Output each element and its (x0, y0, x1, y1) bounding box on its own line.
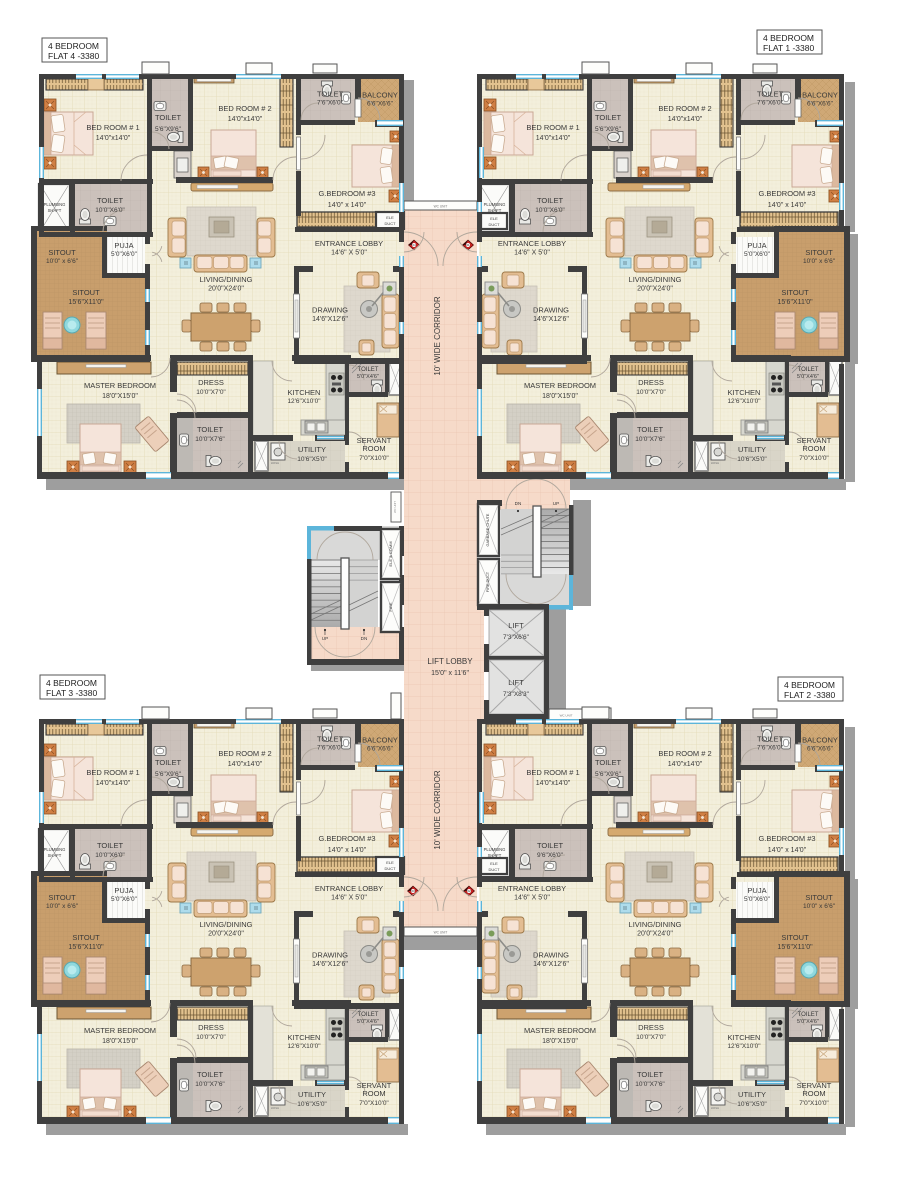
svg-text:14'0" x 14'0": 14'0" x 14'0" (768, 202, 807, 209)
svg-text:TOILET: TOILET (798, 1012, 819, 1018)
svg-text:G.BEDROOM #3: G.BEDROOM #3 (318, 189, 375, 198)
svg-text:BED ROOM # 2: BED ROOM # 2 (218, 104, 271, 113)
svg-text:SITOUT: SITOUT (805, 248, 833, 257)
svg-text:DUCT: DUCT (384, 221, 396, 226)
svg-text:14'0" x 14'0": 14'0" x 14'0" (328, 847, 367, 854)
svg-text:14'0"x14'0": 14'0"x14'0" (96, 780, 131, 787)
svg-text:14'0" x 14'0": 14'0" x 14'0" (768, 847, 807, 854)
svg-text:04: 04 (412, 243, 416, 247)
svg-text:LIVING/DINING: LIVING/DINING (200, 920, 253, 929)
svg-text:FLAT 3 -3380: FLAT 3 -3380 (46, 688, 97, 698)
svg-text:GARBAGE CHUTE: GARBAGE CHUTE (486, 513, 490, 546)
svg-text:DRESS: DRESS (198, 378, 224, 387)
svg-text:14'0"x14'0": 14'0"x14'0" (228, 116, 263, 123)
svg-text:10'0" x 6'6": 10'0" x 6'6" (803, 903, 836, 910)
svg-text:WASH: WASH (271, 461, 279, 465)
svg-text:10'6"X5'0": 10'6"X5'0" (737, 1101, 767, 1108)
svg-text:KITCHEN: KITCHEN (288, 1033, 321, 1042)
svg-text:03: 03 (411, 889, 415, 893)
svg-text:20'0"X24'0": 20'0"X24'0" (637, 931, 673, 938)
svg-text:14'0"x14'0": 14'0"x14'0" (536, 135, 571, 142)
svg-text:ROOM: ROOM (802, 1089, 825, 1098)
svg-text:TOILET: TOILET (197, 425, 224, 434)
svg-text:10'0"X7'0": 10'0"X7'0" (196, 1034, 226, 1041)
svg-text:14'6" X 5'0": 14'6" X 5'0" (331, 250, 367, 257)
svg-text:5'6"X9'6": 5'6"X9'6" (155, 771, 182, 778)
svg-text:MASTER BEDROOM: MASTER BEDROOM (524, 1026, 596, 1035)
svg-text:4 BEDROOM: 4 BEDROOM (784, 680, 835, 690)
svg-text:DUCT: DUCT (488, 867, 500, 872)
svg-text:14'6" X 5'0": 14'6" X 5'0" (514, 895, 550, 902)
svg-text:BED ROOM # 1: BED ROOM # 1 (526, 768, 579, 777)
svg-text:6'6"X6'6": 6'6"X6'6" (367, 746, 394, 753)
svg-text:FIRE DUCT: FIRE DUCT (486, 571, 490, 592)
svg-text:PUJA: PUJA (747, 886, 766, 895)
svg-text:10'0" x 6'6": 10'0" x 6'6" (46, 258, 79, 265)
svg-text:14'6"X12'6": 14'6"X12'6" (533, 316, 569, 323)
svg-text:BED ROOM # 2: BED ROOM # 2 (218, 749, 271, 758)
svg-text:TOILET: TOILET (97, 841, 124, 850)
svg-text:G.BEDROOM #3: G.BEDROOM #3 (758, 189, 815, 198)
svg-text:G.BEDROOM #3: G.BEDROOM #3 (318, 834, 375, 843)
svg-text:4 BEDROOM: 4 BEDROOM (48, 41, 99, 51)
svg-text:TOILET: TOILET (97, 196, 124, 205)
svg-text:LIFT: LIFT (508, 678, 524, 687)
svg-text:WC UNIT: WC UNIT (434, 931, 448, 935)
svg-text:DN: DN (515, 501, 522, 506)
svg-text:TOILET: TOILET (757, 90, 784, 99)
svg-text:ENTRANCE LOBBY: ENTRANCE LOBBY (315, 239, 383, 248)
svg-text:BALCONY: BALCONY (802, 91, 838, 100)
svg-text:15'6"X11'0": 15'6"X11'0" (68, 299, 104, 306)
svg-text:14'0"x14'0": 14'0"x14'0" (668, 116, 703, 123)
svg-text:7'3"X8'3": 7'3"X8'3" (503, 691, 530, 698)
svg-text:TOILET: TOILET (757, 735, 784, 744)
svg-text:LIVING/DINING: LIVING/DINING (629, 275, 682, 284)
svg-text:20'0"X24'0": 20'0"X24'0" (208, 931, 244, 938)
svg-text:UTILITY: UTILITY (298, 445, 326, 454)
svg-text:7'0"X10'0": 7'0"X10'0" (799, 455, 829, 462)
svg-text:FIRE: FIRE (388, 602, 393, 611)
svg-text:TOILET: TOILET (155, 113, 182, 122)
svg-text:5'0"X4'6": 5'0"X4'6" (357, 1019, 379, 1025)
svg-text:4 BEDROOM: 4 BEDROOM (763, 33, 814, 43)
svg-text:14'0"x14'0": 14'0"x14'0" (228, 761, 263, 768)
svg-text:12'6"X10'0": 12'6"X10'0" (727, 398, 761, 405)
svg-text:ELE: ELE (490, 216, 498, 221)
svg-text:WASH: WASH (271, 1106, 279, 1110)
svg-text:PUJA: PUJA (114, 886, 133, 895)
svg-text:TOILET: TOILET (537, 196, 564, 205)
svg-text:10'0"X6'0": 10'0"X6'0" (535, 207, 565, 214)
svg-text:10'6"X5'0": 10'6"X5'0" (297, 456, 327, 463)
svg-text:BALCONY: BALCONY (802, 736, 838, 745)
svg-text:ROOM: ROOM (362, 1089, 385, 1098)
svg-text:BED ROOM # 1: BED ROOM # 1 (86, 123, 139, 132)
svg-text:WC UNIT: WC UNIT (560, 714, 573, 718)
svg-text:10' WIDE CORRIDOR: 10' WIDE CORRIDOR (433, 296, 442, 376)
svg-text:5'0"X6'0": 5'0"X6'0" (111, 896, 138, 903)
svg-text:TOILET: TOILET (798, 367, 819, 373)
svg-text:LIFT LOBBY: LIFT LOBBY (427, 657, 473, 666)
svg-text:UTILITY: UTILITY (738, 1090, 766, 1099)
svg-text:TOILET: TOILET (595, 113, 622, 122)
svg-text:18'0"X15'0": 18'0"X15'0" (542, 393, 578, 400)
svg-text:DRAWING: DRAWING (312, 306, 348, 315)
svg-text:5'6"X9'6": 5'6"X9'6" (595, 126, 622, 133)
svg-text:TOILET: TOILET (637, 425, 664, 434)
svg-text:14'6" X 5'0": 14'6" X 5'0" (331, 895, 367, 902)
svg-text:DUCT: DUCT (488, 222, 500, 227)
svg-text:14'0"x14'0": 14'0"x14'0" (96, 135, 131, 142)
svg-text:10'0"X7'0": 10'0"X7'0" (196, 389, 226, 396)
svg-text:DRAWING: DRAWING (533, 306, 569, 315)
svg-text:SITOUT: SITOUT (805, 893, 833, 902)
svg-text:G.BEDROOM #3: G.BEDROOM #3 (758, 834, 815, 843)
svg-text:ROOM: ROOM (802, 444, 825, 453)
svg-text:5'0"X4'6": 5'0"X4'6" (797, 374, 819, 380)
svg-text:KITCHEN: KITCHEN (288, 388, 321, 397)
svg-text:BALCONY: BALCONY (362, 736, 398, 745)
svg-text:SITOUT: SITOUT (781, 933, 809, 942)
svg-text:KITCHEN: KITCHEN (728, 1033, 761, 1042)
svg-text:7'6"X6'0": 7'6"X6'0" (317, 100, 344, 107)
svg-text:KITCHEN: KITCHEN (728, 388, 761, 397)
svg-text:10'0"X7'6": 10'0"X7'6" (195, 1081, 225, 1088)
svg-text:4 BEDROOM: 4 BEDROOM (46, 678, 97, 688)
svg-text:18'0"X15'0": 18'0"X15'0" (542, 1038, 578, 1045)
svg-text:7'0"X10'0": 7'0"X10'0" (359, 455, 389, 462)
svg-text:7'3"X6'6": 7'3"X6'6" (503, 634, 530, 641)
svg-text:15'0" x 11'6": 15'0" x 11'6" (431, 670, 469, 677)
svg-text:WASH: WASH (711, 1106, 719, 1110)
svg-text:14'0"x14'0": 14'0"x14'0" (668, 761, 703, 768)
svg-text:TOILET: TOILET (537, 841, 564, 850)
svg-text:ELE: ELE (386, 215, 394, 220)
svg-text:20'0"X24'0": 20'0"X24'0" (208, 286, 244, 293)
svg-text:15'6"X11'0": 15'6"X11'0" (777, 944, 813, 951)
svg-text:ENTRANCE LOBBY: ENTRANCE LOBBY (498, 239, 566, 248)
svg-text:7'6"X6'0": 7'6"X6'0" (757, 745, 784, 752)
svg-text:20'0"X24'0": 20'0"X24'0" (637, 286, 673, 293)
svg-text:12'6"X10'0": 12'6"X10'0" (727, 1043, 761, 1050)
svg-text:14'6"X12'6": 14'6"X12'6" (312, 961, 348, 968)
svg-text:TOILET: TOILET (637, 1070, 664, 1079)
svg-text:UP: UP (322, 636, 328, 641)
svg-text:DRAWING: DRAWING (533, 951, 569, 960)
svg-text:10'0" x 6'6": 10'0" x 6'6" (803, 258, 836, 265)
svg-text:7'0"X10'0": 7'0"X10'0" (799, 1100, 829, 1107)
svg-text:SITOUT: SITOUT (48, 893, 76, 902)
svg-text:DRESS: DRESS (198, 1023, 224, 1032)
svg-text:7'6"X6'0": 7'6"X6'0" (757, 100, 784, 107)
svg-text:15'6"X11'0": 15'6"X11'0" (777, 299, 813, 306)
svg-text:TOILET: TOILET (155, 758, 182, 767)
svg-text:12'6"X10'0": 12'6"X10'0" (287, 398, 321, 405)
svg-text:9'6"X6'0": 9'6"X6'0" (537, 852, 564, 859)
svg-text:5'0"X4'6": 5'0"X4'6" (797, 1019, 819, 1025)
svg-text:10'0"X7'6": 10'0"X7'6" (635, 436, 665, 443)
svg-text:10'0"X7'6": 10'0"X7'6" (195, 436, 225, 443)
svg-text:TOILET: TOILET (317, 90, 344, 99)
svg-text:LIVING/DINING: LIVING/DINING (629, 920, 682, 929)
svg-text:10'6"X5'0": 10'6"X5'0" (737, 456, 767, 463)
svg-text:01: 01 (466, 243, 470, 247)
svg-text:TOILET: TOILET (358, 367, 379, 373)
svg-text:BED ROOM # 1: BED ROOM # 1 (526, 123, 579, 132)
svg-text:14'6" X 5'0": 14'6" X 5'0" (514, 250, 550, 257)
svg-text:PLUMBING: PLUMBING (484, 202, 506, 207)
svg-text:SHAFT: SHAFT (48, 208, 62, 213)
svg-text:14'6"X12'6": 14'6"X12'6" (533, 961, 569, 968)
svg-text:ELE & COMM: ELE & COMM (388, 541, 393, 566)
svg-text:PUJA: PUJA (114, 241, 133, 250)
svg-text:FLAT 4 -3380: FLAT 4 -3380 (48, 51, 99, 61)
svg-text:TOILET: TOILET (595, 758, 622, 767)
svg-text:DUCT: DUCT (384, 866, 396, 871)
svg-text:BED ROOM # 2: BED ROOM # 2 (658, 749, 711, 758)
svg-text:BED ROOM # 2: BED ROOM # 2 (658, 104, 711, 113)
svg-text:10'0"X6'0": 10'0"X6'0" (95, 852, 125, 859)
svg-text:ENTRANCE LOBBY: ENTRANCE LOBBY (315, 884, 383, 893)
svg-text:18'0"X15'0": 18'0"X15'0" (102, 393, 138, 400)
svg-text:DRESS: DRESS (638, 1023, 664, 1032)
svg-text:SHAFT: SHAFT (48, 853, 62, 858)
svg-text:ELE: ELE (490, 861, 498, 866)
svg-text:FLAT 2 -3380: FLAT 2 -3380 (784, 690, 835, 700)
svg-text:SITOUT: SITOUT (72, 933, 100, 942)
svg-text:MASTER BEDROOM: MASTER BEDROOM (524, 381, 596, 390)
svg-text:PLUMBING: PLUMBING (44, 847, 66, 852)
svg-text:5'6"X9'6": 5'6"X9'6" (595, 771, 622, 778)
svg-text:14'0"x14'0": 14'0"x14'0" (536, 780, 571, 787)
svg-text:TOILET: TOILET (197, 1070, 224, 1079)
svg-text:10'0" x 6'6": 10'0" x 6'6" (46, 903, 79, 910)
svg-text:10' WIDE CORRIDOR: 10' WIDE CORRIDOR (433, 770, 442, 850)
svg-text:WC UNIT: WC UNIT (434, 205, 448, 209)
svg-text:UTILITY: UTILITY (298, 1090, 326, 1099)
svg-text:14'6"X12'6": 14'6"X12'6" (312, 316, 348, 323)
svg-text:5'0"X6'0": 5'0"X6'0" (111, 251, 138, 258)
svg-text:UP: UP (553, 501, 559, 506)
svg-text:5'6"X9'6": 5'6"X9'6" (155, 126, 182, 133)
svg-text:BED ROOM # 1: BED ROOM # 1 (86, 768, 139, 777)
svg-text:SITOUT: SITOUT (72, 288, 100, 297)
svg-text:TOILET: TOILET (317, 735, 344, 744)
svg-text:6'6"X6'6": 6'6"X6'6" (807, 746, 834, 753)
svg-text:10'0"X6'0": 10'0"X6'0" (95, 207, 125, 214)
svg-text:5'0"X4'6": 5'0"X4'6" (357, 374, 379, 380)
svg-text:LIFT: LIFT (508, 621, 524, 630)
svg-text:7'0"X10'0": 7'0"X10'0" (359, 1100, 389, 1107)
svg-text:UTILITY: UTILITY (738, 445, 766, 454)
svg-text:10'0"X7'6": 10'0"X7'6" (635, 1081, 665, 1088)
svg-text:MASTER BEDROOM: MASTER BEDROOM (84, 1026, 156, 1035)
svg-text:ELE: ELE (386, 860, 394, 865)
svg-text:10'0"X7'0": 10'0"X7'0" (636, 1034, 666, 1041)
svg-text:14'0" x 14'0": 14'0" x 14'0" (328, 202, 367, 209)
svg-text:DRAWING: DRAWING (312, 951, 348, 960)
svg-text:WASH: WASH (711, 461, 719, 465)
svg-text:02: 02 (467, 889, 471, 893)
svg-text:SITOUT: SITOUT (48, 248, 76, 257)
svg-text:5'0"X6'0": 5'0"X6'0" (744, 251, 771, 258)
svg-text:5'0"X6'0": 5'0"X6'0" (744, 896, 771, 903)
svg-text:15'6"X11'0": 15'6"X11'0" (68, 944, 104, 951)
svg-text:PLUMBING: PLUMBING (484, 847, 506, 852)
svg-text:BALCONY: BALCONY (362, 91, 398, 100)
svg-text:ROOM: ROOM (362, 444, 385, 453)
svg-text:MASTER BEDROOM: MASTER BEDROOM (84, 381, 156, 390)
svg-text:WC UNIT: WC UNIT (393, 501, 397, 513)
svg-text:TOILET: TOILET (358, 1012, 379, 1018)
svg-text:6'6"X6'6": 6'6"X6'6" (367, 101, 394, 108)
svg-text:ENTRANCE LOBBY: ENTRANCE LOBBY (498, 884, 566, 893)
svg-text:6'6"X6'6": 6'6"X6'6" (807, 101, 834, 108)
svg-text:LIVING/DINING: LIVING/DINING (200, 275, 253, 284)
svg-text:10'0"X7'0": 10'0"X7'0" (636, 389, 666, 396)
svg-text:12'6"X10'0": 12'6"X10'0" (287, 1043, 321, 1050)
svg-text:10'6"X5'0": 10'6"X5'0" (297, 1101, 327, 1108)
svg-text:DRESS: DRESS (638, 378, 664, 387)
svg-text:7'6"X6'0": 7'6"X6'0" (317, 745, 344, 752)
svg-text:DN: DN (361, 636, 368, 641)
svg-text:SITOUT: SITOUT (781, 288, 809, 297)
svg-text:18'0"X15'0": 18'0"X15'0" (102, 1038, 138, 1045)
svg-text:FLAT 1 -3380: FLAT 1 -3380 (763, 43, 814, 53)
svg-text:PUJA: PUJA (747, 241, 766, 250)
svg-text:PLUMBING: PLUMBING (44, 202, 66, 207)
